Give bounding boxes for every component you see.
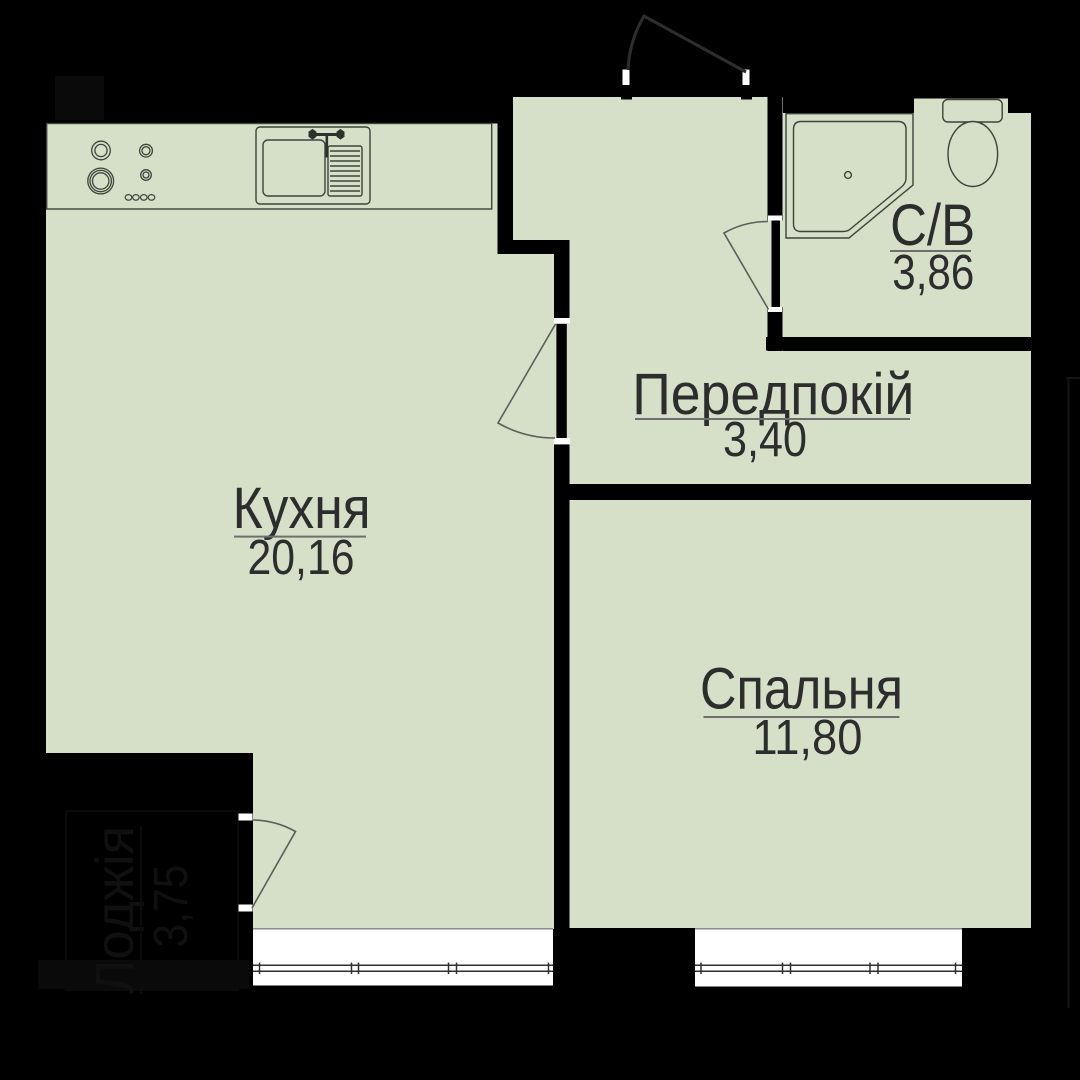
svg-text:3,40: 3,40 xyxy=(723,412,807,467)
svg-text:20,16: 20,16 xyxy=(248,530,355,585)
svg-text:Лоджія: Лоджія xyxy=(85,826,145,994)
svg-text:3,75: 3,75 xyxy=(145,865,198,948)
svg-text:3,86: 3,86 xyxy=(892,245,974,300)
svg-text:11,80: 11,80 xyxy=(752,710,862,765)
